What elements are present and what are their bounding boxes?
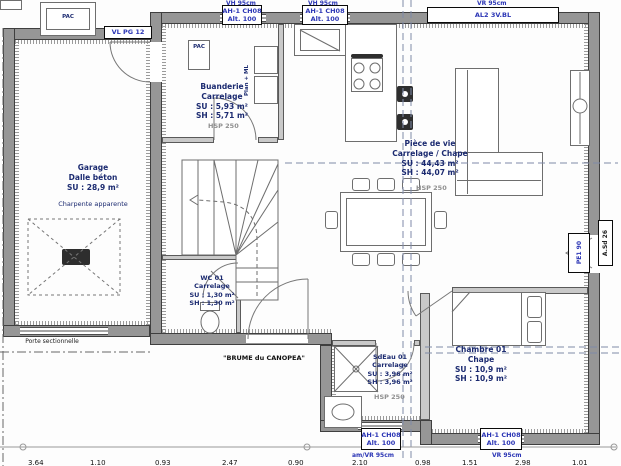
corner-marker-box [0,0,22,10]
dimension-value: 0.93 [155,459,171,466]
window-ref-bay: AL2 3V.BL [427,7,559,23]
window-sill: Alt. 100 [487,439,516,447]
chair [434,211,447,229]
wall-wc-east-a [236,255,241,265]
bed-head-line [521,292,522,346]
room-sh: SH : 3,96 m² [367,378,412,386]
room-su: SU : 28,9 m² [67,183,119,193]
cooktop-control-strip [351,54,383,58]
wall-buanderie-east [278,24,284,140]
front-door-opening [246,335,308,343]
side-door-ref: PE1 90 [568,233,590,273]
window-sill: Alt. 100 [228,15,257,23]
insulation-strip [15,40,150,44]
wall-buanderie-south-b [258,137,278,143]
insulation-strip [162,24,166,333]
room-floor: Carrelage [189,282,234,290]
hsp-label: HSP 250 [416,184,447,192]
marker-code: A.Sd 26 [601,230,610,256]
room-su: SU : 44,43 m² [392,159,467,169]
window-ref-chambre: AH-1 CH08 Alt. 100 [480,428,522,450]
dryer-unit [254,76,278,104]
chair [402,253,420,266]
room-floor: Carrelage / Chape [392,149,467,159]
sofa-cushion-line [457,180,541,181]
room-floor: Carrelage [196,92,248,102]
chair [325,211,338,229]
window-ref-top-1: AH-1 CH08 Alt. 100 [222,5,262,25]
front-door-label: "BRUME du CANOPEA" [223,354,305,362]
garage-sectional-door [20,327,108,335]
window-ref-top-2: AH-1 CH08 Alt. 100 [302,5,348,25]
wall-garage-left [3,28,15,337]
window-note: VR 95cm [492,452,522,459]
room-label-sdeau: SdEau 01 Carrelage SU : 3,96 m² SH : 3,9… [367,353,412,387]
room-su: SU : 3,96 m² [367,370,412,378]
room-sh: SH : 44,07 m² [392,168,467,178]
window-sill: Alt. 100 [311,15,340,23]
dimension-value: 2.10 [352,459,368,466]
washer-unit [254,46,278,74]
section-marker-dot [402,91,408,97]
dimension-value: 0.98 [415,459,431,466]
room-su: SU : 1,30 m² [189,291,234,299]
window-code: AH-1 CH08 [481,431,520,439]
dimension-value: 2.98 [515,459,531,466]
chair [352,253,370,266]
wall-south-connector [420,420,432,445]
dining-table-inner [346,198,426,246]
pillow [527,321,542,343]
room-floor: Carrelage [367,361,412,369]
floor-plan-canvas: PAC PAC Plan + ML [0,0,621,466]
cooktop [351,58,383,92]
window-code: AH-1 CH08 [222,7,261,15]
pillow [527,296,542,318]
garage-entry-opening [150,42,162,82]
right-marker-box: A.Sd 26 [598,220,613,266]
room-sh: SH : 1,30 m² [189,299,234,307]
wall-buanderie-south-a [162,137,214,143]
garage-door-label: Porte sectionnelle [25,338,79,345]
window-ref-sdeau: AH-1 CH08 Alt. 100 [361,428,401,450]
dimension-value: 1.01 [572,459,588,466]
garage-truss-center [62,249,90,265]
chair [377,253,395,266]
wall-chambre-west [420,293,430,420]
radiator [570,70,590,146]
window-code: VL PG 12 [112,28,145,36]
dimension-value: 1.51 [462,459,478,466]
kitchen-sink-basin [300,29,340,51]
window-code: AH-1 CH08 [305,7,344,15]
annotation-overlay [0,0,621,466]
pac-indoor-label: PAC [193,44,205,50]
window-code: AH-1 CH08 [361,431,400,439]
section-marker-dot [402,119,408,125]
room-name: WC 01 [189,274,234,282]
insulation-strip [15,40,19,325]
room-name: Pièce de vie [392,139,467,149]
room-floor: Dalle béton [67,173,119,183]
window-note: VR 95cm [477,0,507,7]
sofa-horizontal-arm [455,152,543,196]
vanity [324,396,362,428]
door-code: PE1 90 [575,241,584,264]
chair [352,178,370,191]
room-label-wc: WC 01 Carrelage SU : 1,30 m² SH : 1,30 m… [189,274,234,308]
dimension-value: 1.10 [90,459,106,466]
room-sh: SH : 5,71 m² [196,111,248,121]
hsp-label: HSP 250 [208,122,239,130]
room-label-garage: Garage Dalle béton SU : 28,9 m² [67,163,119,192]
room-label-buanderie: Buanderie Carrelage SU : 5,93 m² SH : 5,… [196,82,248,121]
window-sill: Alt. 100 [367,439,396,447]
window-ref-garage: VL PG 12 [104,26,152,39]
hsp-label: HSP 250 [374,393,405,401]
room-name: Chambre 01 [455,345,507,355]
room-label-chambre: Chambre 01 Chape SU : 10,9 m² SH : 10,9 … [455,345,507,384]
window-note: am/VR 95cm [352,452,394,459]
room-su: SU : 5,93 m² [196,102,248,112]
pac-outdoor-label: PAC [62,14,74,20]
section-lines [0,0,621,466]
dimension-value: 0.90 [288,459,304,466]
dimension-value: 2.47 [222,459,238,466]
room-sh: SH : 10,9 m² [455,374,507,384]
room-floor: Chape [455,355,507,365]
wall-wc-north [162,255,238,260]
dimension-value: 3.64 [28,459,44,466]
room-name: Garage [67,163,119,173]
room-label-piece-de-vie: Pièce de vie Carrelage / Chape SU : 44,4… [392,139,467,178]
room-su: SU : 10,9 m² [455,365,507,375]
room-name: Buanderie [196,82,248,92]
wall-wc-east-b [236,298,241,333]
window-code: AL2 3V.BL [475,11,511,19]
chair [377,178,395,191]
room-name: SdEau 01 [367,353,412,361]
garage-note: Charpente apparente [58,200,128,208]
